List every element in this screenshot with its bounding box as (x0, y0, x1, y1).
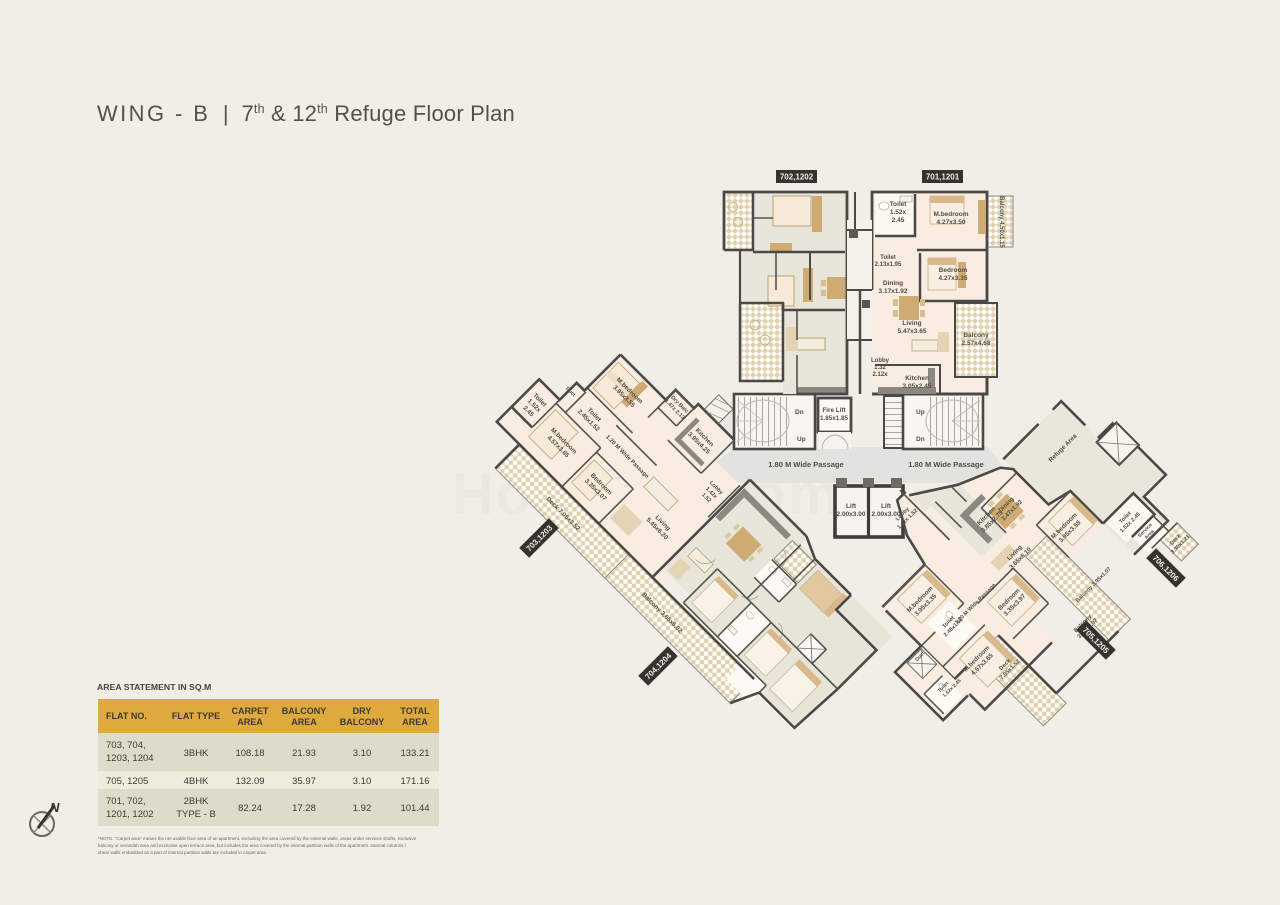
svg-text:Up: Up (797, 436, 806, 443)
svg-text:M.bedroom: M.bedroom (933, 211, 968, 218)
svg-text:1.80 M Wide Passage: 1.80 M Wide Passage (768, 460, 843, 469)
svg-text:FLAT NO.: FLAT NO. (106, 711, 147, 721)
svg-text:3.05x2.45: 3.05x2.45 (903, 383, 932, 390)
svg-text:1.32: 1.32 (874, 365, 886, 371)
svg-text:shear walls embedded as a part: shear walls embedded as a part of intern… (98, 850, 267, 855)
svg-text:Balcony 4.50x1.15: Balcony 4.50x1.15 (998, 196, 1004, 248)
svg-text:108.18: 108.18 (235, 748, 264, 759)
svg-text:Dn: Dn (795, 409, 804, 416)
svg-text:balcony or verandah area and e: balcony or verandah area and exclusive o… (98, 843, 407, 848)
svg-text:Fire Lift: Fire Lift (822, 407, 846, 414)
svg-text:133.21: 133.21 (400, 748, 429, 759)
svg-text:AREA: AREA (237, 717, 263, 727)
svg-text:CARPET: CARPET (231, 706, 269, 716)
svg-text:Balcony: Balcony (963, 332, 989, 339)
svg-text:Up: Up (916, 409, 925, 416)
svg-text:AREA STATEMENT IN SQ.M: AREA STATEMENT IN SQ.M (97, 682, 211, 692)
svg-text:1.52x: 1.52x (890, 209, 907, 216)
svg-text:BALCONY: BALCONY (340, 717, 385, 727)
svg-text:3.10: 3.10 (353, 748, 372, 759)
svg-text:Living: Living (902, 320, 921, 327)
svg-text:TYPE - B: TYPE - B (176, 809, 216, 820)
svg-text:FLAT TYPE: FLAT TYPE (172, 711, 220, 721)
svg-text:*NOTE: "Carpet area" means the: *NOTE: "Carpet area" means the net usabl… (98, 836, 417, 841)
svg-text:5.47x3.65: 5.47x3.65 (898, 328, 927, 335)
svg-text:1.85x1.85: 1.85x1.85 (820, 415, 849, 422)
svg-text:3BHK: 3BHK (184, 748, 209, 759)
svg-text:4.27x3.50: 4.27x3.50 (937, 219, 966, 226)
svg-text:702,1202: 702,1202 (780, 173, 814, 182)
svg-text:Lift: Lift (881, 503, 892, 510)
svg-text:703, 704,: 703, 704, (106, 740, 146, 751)
svg-text:Dining: Dining (883, 280, 903, 287)
svg-text:AREA: AREA (291, 717, 317, 727)
svg-text:1201, 1202: 1201, 1202 (106, 809, 154, 820)
svg-text:Dn: Dn (916, 436, 925, 443)
svg-text:3.17x1.92: 3.17x1.92 (879, 288, 908, 295)
svg-text:2.12x: 2.12x (872, 372, 888, 378)
svg-text:2.00x3.00: 2.00x3.00 (837, 511, 866, 518)
svg-text:Bedroom: Bedroom (939, 267, 968, 274)
svg-text:701,1201: 701,1201 (926, 173, 960, 182)
svg-text:101.44: 101.44 (400, 803, 429, 814)
svg-text:701, 702,: 701, 702, (106, 796, 146, 807)
svg-text:DRY: DRY (353, 706, 372, 716)
svg-text:132.09: 132.09 (235, 776, 264, 787)
svg-text:1203, 1204: 1203, 1204 (106, 753, 154, 764)
svg-text:2.13x1.95: 2.13x1.95 (875, 262, 902, 268)
svg-text:3.10: 3.10 (353, 776, 372, 787)
svg-text:82.24: 82.24 (238, 803, 262, 814)
svg-text:2.45: 2.45 (892, 217, 905, 224)
svg-text:WING - B | 7th & 12th Refuge: WING - B | 7th & 12th Refuge Floor Plan (97, 101, 515, 126)
svg-text:2BHK: 2BHK (184, 796, 209, 807)
svg-text:Kitchen: Kitchen (905, 375, 929, 382)
svg-text:BALCONY: BALCONY (282, 706, 327, 716)
svg-text:17.28: 17.28 (292, 803, 316, 814)
svg-text:TOTAL: TOTAL (400, 706, 430, 716)
svg-text:171.16: 171.16 (400, 776, 429, 787)
svg-text:21.93: 21.93 (292, 748, 316, 759)
svg-text:AREA: AREA (402, 717, 428, 727)
svg-text:Toilet: Toilet (890, 201, 908, 208)
svg-text:Lobby: Lobby (871, 358, 890, 364)
svg-text:2.57x4.68: 2.57x4.68 (962, 340, 991, 347)
svg-text:N: N (50, 800, 60, 815)
svg-text:1.92: 1.92 (353, 803, 372, 814)
svg-text:4BHK: 4BHK (184, 776, 209, 787)
svg-text:Lift: Lift (846, 503, 857, 510)
svg-text:705, 1205: 705, 1205 (106, 776, 148, 787)
svg-text:35.97: 35.97 (292, 776, 316, 787)
svg-text:1.80 M Wide Passage: 1.80 M Wide Passage (908, 460, 983, 469)
svg-text:Toilet: Toilet (880, 255, 896, 261)
svg-text:4.27x3.35: 4.27x3.35 (939, 275, 968, 282)
